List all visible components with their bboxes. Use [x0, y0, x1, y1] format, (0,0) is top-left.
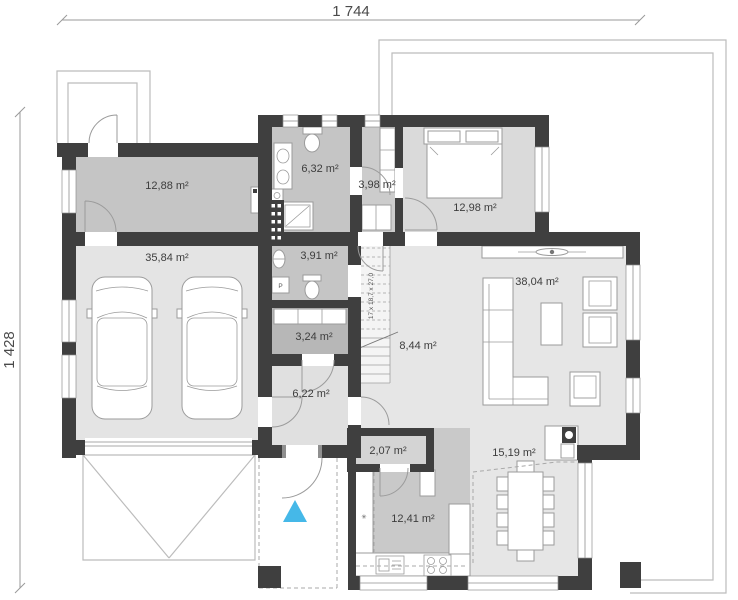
dining-chair	[543, 495, 554, 509]
service-shaft	[269, 200, 284, 244]
room-label-pantry: 2,07 m²	[369, 445, 407, 457]
window	[62, 300, 76, 342]
room-label-utility: 12,88 m²	[145, 180, 189, 192]
driveway	[83, 455, 255, 560]
room-label-kitchen: 12,41 m²	[391, 513, 435, 525]
dimension-left: 1 428	[1, 107, 25, 593]
kitchen-counter	[355, 470, 373, 553]
washbasin-counter	[274, 143, 292, 189]
room-label-bedroom: 12,98 m²	[453, 202, 497, 214]
entry-canopy-outline	[57, 71, 150, 143]
dimension-width-label: 1 744	[332, 3, 370, 20]
dimension-top: 1 744	[57, 3, 645, 25]
window	[283, 115, 298, 127]
window	[626, 378, 640, 413]
room-label-dining: 15,19 m²	[492, 447, 536, 459]
dining-chair	[543, 531, 554, 545]
room-label-bathroom: 6,32 m²	[301, 163, 339, 175]
window	[626, 265, 640, 340]
staircase-floor	[361, 246, 390, 383]
entry-door	[282, 445, 322, 458]
fireplace-stove	[545, 426, 578, 460]
armchair	[583, 313, 617, 347]
storage-closet	[274, 309, 346, 324]
floor-plan-drawing: P	[0, 0, 738, 600]
toilet-tank	[303, 275, 321, 281]
room-label-vestibule: 6,22 m²	[292, 388, 330, 400]
armchair	[583, 277, 617, 310]
tv-cabinet	[482, 246, 623, 258]
entrance-arrow-icon	[283, 500, 307, 522]
toilet-bowl	[305, 134, 320, 152]
toilet-bowl	[305, 281, 319, 299]
kitchen-counter	[449, 504, 470, 554]
room-label-garage: 35,84 m²	[145, 252, 189, 264]
sink-icon: ✳	[361, 513, 367, 521]
window	[322, 115, 337, 127]
terrace-pillar	[620, 562, 641, 588]
garage-door	[85, 438, 252, 454]
window	[62, 355, 76, 398]
room-label-living: 38,04 m²	[515, 276, 559, 288]
window	[535, 147, 549, 212]
armchair	[570, 372, 600, 406]
kitchen-counter	[355, 553, 470, 576]
dining-chair	[517, 461, 534, 472]
washing-machine-label: P	[278, 283, 282, 290]
double-bed	[424, 128, 502, 198]
dining-chair	[497, 513, 508, 527]
room-label-hall: 8,44 m²	[399, 340, 437, 352]
toilet-tank	[303, 127, 322, 134]
dining-chair	[543, 513, 554, 527]
dining-chair	[497, 477, 508, 491]
room-vestibule-floor	[272, 366, 348, 445]
room-label-wardrobe: 3,98 m²	[358, 179, 396, 191]
dining-chair	[517, 550, 534, 561]
car-2	[177, 277, 247, 419]
fridge	[420, 470, 435, 496]
dining-table	[508, 472, 543, 550]
floor-plan-page: P	[0, 0, 738, 600]
coffee-table	[541, 303, 562, 345]
dimension-height-label: 1 428	[1, 331, 18, 369]
window	[360, 576, 427, 590]
car-1	[87, 277, 157, 419]
room-label-wc: 3,91 m²	[300, 250, 338, 262]
dining-chair	[497, 495, 508, 509]
window	[365, 115, 380, 127]
window	[578, 463, 592, 558]
porch-pillar	[258, 566, 281, 588]
dining-chair	[497, 531, 508, 545]
room-utility-floor	[76, 157, 258, 232]
stairs-label: 17 x 18,7 x 27,0	[368, 272, 375, 319]
window	[468, 576, 558, 590]
dining-chair	[543, 477, 554, 491]
room-label-storage: 3,24 m²	[295, 331, 333, 343]
window	[62, 170, 76, 213]
